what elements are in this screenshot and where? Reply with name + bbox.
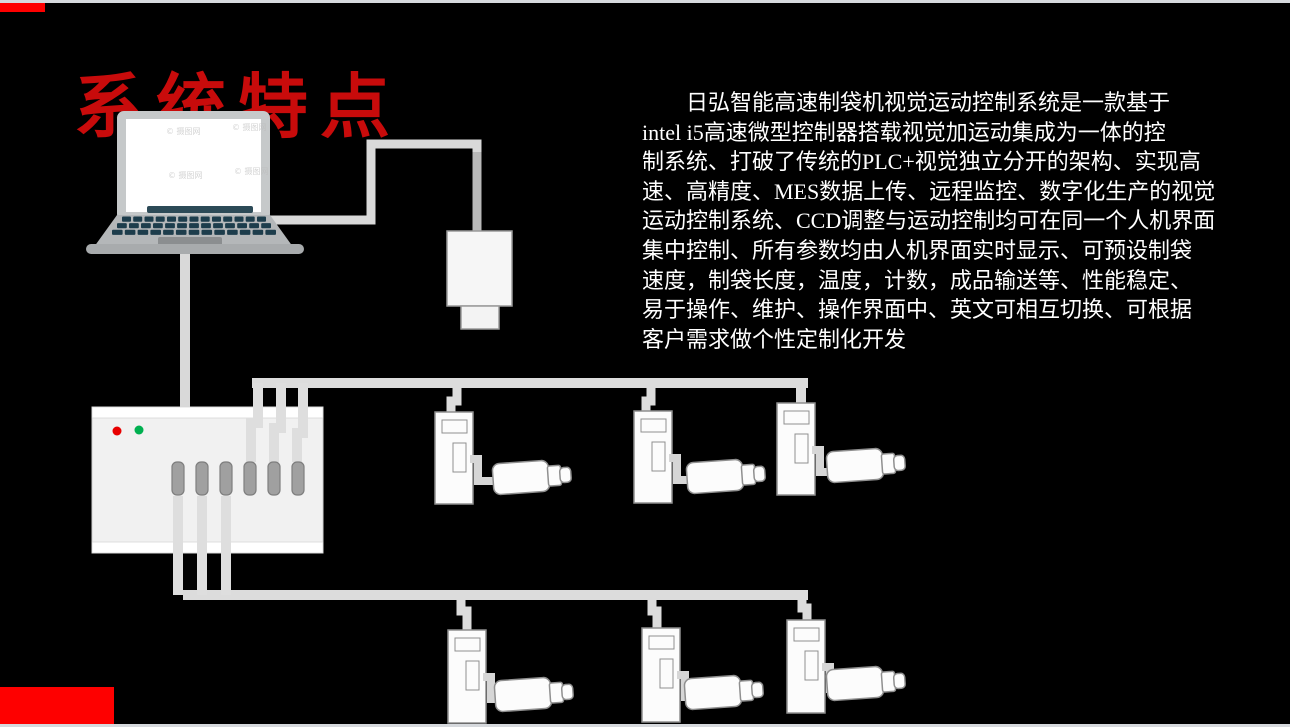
- io-slot-1: [172, 462, 184, 495]
- io-slot-4: [244, 462, 256, 495]
- servo-units: [435, 403, 906, 723]
- motion-controller-box: [92, 383, 323, 595]
- camera-body: [447, 231, 512, 306]
- laptop-key: [225, 223, 235, 228]
- controller-bottom-strip: [92, 542, 323, 553]
- laptop-base: [86, 244, 304, 254]
- watermark-text: © 摄图网: [232, 123, 267, 132]
- laptop-key: [129, 223, 139, 228]
- top-drop-cable-2: [646, 386, 651, 414]
- status-led-green: [135, 426, 144, 435]
- laptop-key: [240, 230, 251, 235]
- laptop-key: [189, 230, 200, 235]
- controller-out-cable-2: [197, 496, 207, 595]
- top-drop-cable-1: [451, 386, 457, 414]
- servo-motor-top-2: [686, 458, 766, 494]
- watermark-text: © 摄图网: [168, 171, 203, 180]
- laptop-key: [153, 223, 163, 228]
- laptop-key: [178, 217, 187, 222]
- laptop-key: [138, 230, 149, 235]
- laptop-key: [265, 230, 276, 235]
- laptop-to-camera-cable: [268, 144, 477, 233]
- laptop: © 摄图网 © 摄图网 © 摄图网 © 摄图网: [86, 111, 304, 254]
- controller-out-cable-3: [221, 496, 231, 595]
- laptop-key: [223, 217, 232, 222]
- servo-drive-bottom-3: [787, 620, 825, 713]
- servo-motor-bottom-3: [826, 665, 906, 701]
- bottom-drop-cable-1: [461, 598, 467, 633]
- top-bus-cable: [252, 378, 808, 388]
- laptop-key: [246, 217, 255, 222]
- servo-drive-top-3: [777, 403, 815, 495]
- controller-out-cable-1: [173, 496, 183, 595]
- laptop-key: [227, 230, 238, 235]
- laptop-key: [190, 217, 199, 222]
- laptop-key: [145, 217, 154, 222]
- io-slot-5: [268, 462, 280, 495]
- laptop-to-controller-cable: [180, 250, 190, 410]
- servo-motor-bottom-2: [684, 674, 764, 710]
- watermark-text: © 摄图网: [234, 167, 269, 176]
- laptop-key: [201, 223, 211, 228]
- servo-motor-top-1: [492, 459, 572, 495]
- laptop-key: [176, 230, 187, 235]
- laptop-key: [202, 230, 213, 235]
- laptop-key: [112, 230, 123, 235]
- laptop-key: [165, 223, 175, 228]
- laptop-key: [141, 223, 151, 228]
- camera-lens: [461, 306, 499, 329]
- bottom-left-red-accent: [0, 687, 114, 724]
- servo-motor-top-3: [826, 447, 906, 483]
- vision-camera: [447, 231, 512, 329]
- laptop-key: [122, 217, 131, 222]
- servo-drive-top-1: [435, 412, 473, 504]
- io-slot-2: [196, 462, 208, 495]
- servo-drive-top-2: [634, 411, 672, 503]
- laptop-key: [257, 217, 266, 222]
- servo-drive-bottom-2: [642, 628, 680, 722]
- laptop-key: [163, 230, 174, 235]
- bottom-drop-cable-2: [652, 598, 657, 631]
- laptop-key: [167, 217, 176, 222]
- controller-top-strip: [92, 407, 323, 418]
- laptop-key: [261, 223, 271, 228]
- laptop-key: [189, 223, 199, 228]
- cables: [180, 144, 808, 633]
- laptop-key: [150, 230, 161, 235]
- laptop-key: [253, 230, 264, 235]
- system-topology-diagram: © 摄图网 © 摄图网 © 摄图网 © 摄图网: [0, 0, 1290, 727]
- laptop-key: [125, 230, 136, 235]
- top-left-red-accent: [0, 3, 45, 12]
- laptop-key: [212, 217, 221, 222]
- watermark-text: © 摄图网: [166, 127, 201, 136]
- laptop-key: [117, 223, 127, 228]
- power-led-red: [113, 427, 122, 436]
- io-slot-3: [220, 462, 232, 495]
- laptop-key: [177, 223, 187, 228]
- laptop-key: [214, 230, 225, 235]
- servo-motor-bottom-1: [494, 676, 574, 712]
- io-slot-6: [292, 462, 304, 495]
- laptop-key: [213, 223, 223, 228]
- laptop-key: [156, 217, 165, 222]
- bottom-bus-cable: [183, 590, 808, 600]
- servo-drive-bottom-1: [448, 630, 486, 723]
- laptop-key: [201, 217, 210, 222]
- laptop-key: [249, 223, 259, 228]
- laptop-hinge-bar: [147, 206, 253, 213]
- laptop-key: [237, 223, 247, 228]
- laptop-key: [235, 217, 244, 222]
- laptop-key: [133, 217, 142, 222]
